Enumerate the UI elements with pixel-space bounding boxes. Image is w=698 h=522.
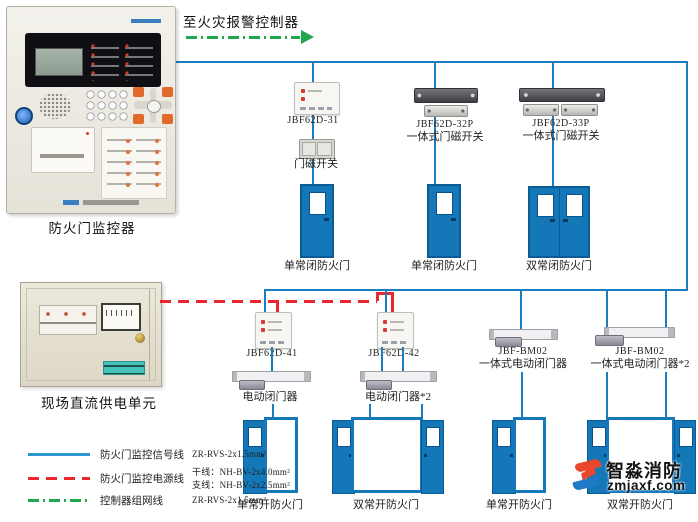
power-unit-label: 现场直流供电单元 (24, 392, 174, 412)
closer1-to-doorA-line (272, 404, 274, 418)
door-handle (324, 218, 329, 221)
dc-power-supply-unit (20, 282, 162, 387)
closer1-label: 电动闭门器 (220, 391, 320, 403)
door-opening (351, 417, 423, 493)
module-brand-line (260, 341, 286, 344)
monitor-numeric-keypad (85, 89, 130, 123)
module-led (301, 97, 305, 101)
closed-fire-door (300, 184, 334, 258)
module-jbf62d-41 (255, 312, 292, 349)
closed-fire-door (427, 184, 461, 258)
door-handle (550, 219, 555, 222)
module-text-line (268, 329, 282, 331)
printer-slot (40, 154, 84, 158)
bm02a-to-doorC-line (521, 372, 523, 418)
drop-to-m31 (312, 63, 314, 83)
module-brand-line (300, 107, 332, 110)
legend-power-line-swatch (28, 477, 90, 480)
module-led (301, 89, 305, 93)
zone-indicator-column (107, 136, 132, 190)
monitor-zone-panel (101, 127, 167, 199)
legend-power-spec-trunk: 干线：NH-BV-2x4.0mm² (192, 465, 290, 478)
monitor-lcd-screen (35, 48, 83, 76)
door-divider (559, 188, 560, 256)
signal-bus-top (176, 61, 688, 63)
network-arrowhead-icon (301, 30, 314, 44)
power-rating-tag (103, 361, 145, 375)
monitor-printer (31, 127, 95, 173)
door-magnet-switch-label: 门磁开关 (266, 158, 366, 170)
door-closer-body (239, 380, 265, 390)
switch-half (317, 142, 332, 156)
nav-key-top-left (133, 87, 144, 97)
zhimiao-logo-icon (572, 460, 604, 494)
legend-power-label: 防火门监控电源线 (100, 471, 192, 486)
door-handle (563, 219, 568, 222)
module-led (383, 320, 387, 324)
door-window (679, 427, 693, 447)
open-double-door-2-label: 双常开防火门 (585, 499, 695, 511)
fire-door-monitor-cabinet (6, 6, 176, 214)
module-led (261, 328, 265, 332)
signal-bus-right-drop (686, 61, 688, 291)
legend-power-spec-branch: 支线：NH-BV-2x2.5mm² (192, 478, 290, 491)
open-door-2-label: 单常开防火门 (464, 499, 574, 511)
monitor-key-lock (15, 107, 33, 125)
module-jbf62d-33p-label: JBF62D-33P (511, 118, 611, 129)
closer2-to-doorB-line (421, 404, 423, 418)
monitor-brand-icon (131, 19, 161, 23)
open-fire-door (492, 417, 546, 496)
module-text-line (308, 90, 322, 92)
jbf62d-33p-strike-plate (561, 104, 598, 116)
logo-blue-swoosh (572, 476, 600, 491)
jbf62d-32p-strike-plate (424, 105, 468, 117)
monitor-display-panel (25, 33, 161, 87)
module-jbf62d-42 (377, 312, 414, 349)
watermark-site: zmjaxf.com (607, 478, 686, 493)
door-handle (451, 218, 456, 221)
zone-indicator-column (136, 136, 161, 190)
module-jbf62d-32p-device (414, 88, 478, 103)
drop-to-bm02a (520, 291, 522, 329)
controller-network-line (186, 36, 300, 39)
door-window (436, 192, 453, 215)
module-text-line (390, 329, 404, 331)
drop-to-m41 (264, 291, 266, 313)
nav-key-top-right (162, 87, 173, 97)
door-window (248, 427, 262, 447)
switch-half (302, 142, 316, 156)
m42-to-closer2-line (402, 347, 404, 371)
door-window (537, 194, 554, 217)
door-window (309, 192, 326, 215)
door-magnet-switch-device (299, 139, 335, 159)
monitor-speaker-grille (39, 93, 71, 119)
jbf62d-32p-desc: 一体式门磁开关 (390, 131, 500, 143)
legend-row-signal: 防火门监控信号线 ZR-RVS-2x1.5mm² (28, 447, 266, 461)
module-jbf62d-32p-label: JBF62D-32P (395, 119, 495, 130)
bm02b-to-doorD-line (665, 372, 667, 418)
legend-network-spec: ZR-RVS-2x1.5mm² (192, 495, 266, 505)
door-window (592, 427, 606, 447)
drop-to-bm02b-right (665, 291, 667, 327)
module-jbf62d-31 (294, 82, 340, 115)
door-window (497, 427, 511, 447)
closed-double-door-label: 双常闭防火门 (504, 260, 614, 272)
monitor-indicator-column (125, 43, 153, 81)
jbf62d-33p-strike-plate (523, 104, 559, 116)
power-line-main (160, 300, 377, 303)
module-brand-line (382, 341, 408, 344)
monitor-nav-keys (133, 87, 173, 124)
module-text-line (268, 321, 282, 323)
power-branch-to-m42 (391, 295, 394, 313)
legend-row-power: 防火门监控电源线 干线：NH-BV-2x4.0mm² 支线：NH-BV-2x2.… (28, 466, 290, 490)
module-led (383, 328, 387, 332)
module-led (261, 320, 265, 324)
door-window (337, 427, 351, 447)
door-closer-body (366, 380, 392, 390)
meter-scale (106, 310, 132, 316)
watermark: 智淼消防 zmjaxf.com (572, 452, 696, 498)
bm02-closer-body (595, 335, 624, 346)
legend-network-line-swatch (28, 499, 90, 502)
legend-signal-label: 防火门监控信号线 (100, 447, 192, 462)
bm02a-desc-label: 一体式电动闭门器 (468, 358, 578, 370)
power-meter (101, 303, 141, 331)
legend-row-network: 控制器组网线 ZR-RVS-2x1.5mm² (28, 493, 266, 507)
drop-to-m42 (385, 291, 387, 313)
closer2-to-doorB-line (369, 404, 371, 418)
m41-to-closer1-line (271, 347, 273, 371)
power-indicator-panel (39, 305, 97, 335)
power-door-seam (149, 289, 150, 380)
closed-door-2-label: 单常闭防火门 (389, 260, 499, 272)
door-window (426, 427, 440, 447)
signal-bus-bottom (264, 289, 688, 291)
monitor-logo-strip (63, 200, 139, 205)
power-hook-left-leg (376, 295, 379, 301)
power-emblem-icon (135, 333, 145, 343)
nav-key-center (147, 100, 161, 113)
monitor-label: 防火门监控器 (32, 217, 152, 237)
to-fire-alarm-controller-label: 至火灾报警控制器 (183, 11, 383, 31)
module-jbf62d-31-label: JBF62D-31 (263, 115, 363, 126)
door-handle (424, 454, 427, 457)
bm02a-model-label: JBF-BM02 (473, 346, 573, 357)
bm02b-model-label: JBF-BM02 (590, 346, 690, 357)
drop-to-m33p (552, 63, 554, 88)
open-double-fire-door (332, 417, 442, 496)
drop-to-m32p (434, 63, 436, 88)
closed-double-fire-door (528, 186, 590, 258)
legend-network-label: 控制器组网线 (100, 493, 192, 508)
door-window (566, 194, 583, 217)
fire-door-monitoring-system-diagram: 至火灾报警控制器 (0, 0, 698, 522)
module-text-line (390, 321, 404, 323)
door-opening (513, 417, 546, 493)
door-leaf (421, 420, 444, 494)
nav-key-bottom-right (162, 114, 173, 124)
module-jbf62d-42-label: JBF62D-42 (344, 348, 444, 359)
drop-to-bm02b-left (606, 291, 608, 327)
bm02b-to-doorD-line (606, 372, 608, 418)
legend-signal-line-swatch (28, 453, 90, 456)
m42-to-closer2-line (381, 347, 383, 371)
bm02b-desc-label: 一体式电动闭门器*2 (578, 358, 698, 370)
monitor-indicator-column (91, 43, 119, 81)
module-jbf62d-33p-device (519, 88, 605, 102)
nav-key-bottom-left (133, 114, 144, 124)
open-double-door-1-label: 双常开防火门 (331, 499, 441, 511)
legend-signal-spec: ZR-RVS-2x1.5mm² (192, 449, 266, 459)
closed-door-1-label: 单常闭防火门 (262, 260, 372, 272)
jbf62d-33p-desc: 一体式门磁开关 (506, 130, 616, 142)
closer2-label: 电动闭门器*2 (343, 391, 453, 403)
printer-led (86, 132, 89, 135)
